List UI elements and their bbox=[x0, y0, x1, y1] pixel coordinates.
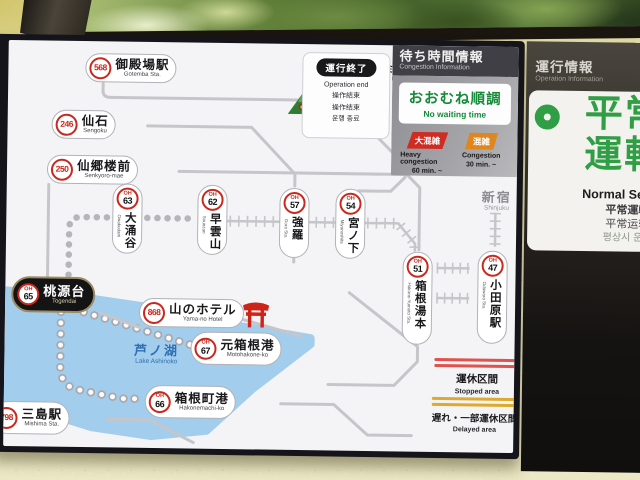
station-motohakone: OH67 元箱根港Motohakone-ko bbox=[190, 332, 281, 366]
normal-status-circle-icon bbox=[535, 104, 560, 129]
station-number-badge: OH54 bbox=[339, 193, 361, 215]
station-number-badge: OH63 bbox=[116, 187, 138, 209]
route-badge: 568 bbox=[89, 57, 111, 79]
congestion-info-panel: 待ち時間情報 Congestion Information おおむね順調 No … bbox=[391, 45, 519, 181]
heavy-congestion-legend: 大混雑 Heavy congestion 60 min. ~ bbox=[400, 132, 455, 175]
station-miyanoshita: OH54 Miyanoshita宮ノ下 bbox=[335, 189, 366, 259]
congestion-badge: 混雑 bbox=[465, 133, 498, 150]
congestion-panel-body: おおむね順調 No waiting time 大混雑 bbox=[391, 76, 518, 178]
station-senkyoro: 250 仙郷楼前Senkyoro-mae bbox=[47, 155, 138, 185]
stopped-line-symbol bbox=[434, 358, 518, 368]
lake-label: 芦ノ湖 Lake Ashinoko bbox=[116, 343, 196, 366]
station-number-badge: OH66 bbox=[149, 390, 171, 412]
heavy-congestion-badge: 大混雑 bbox=[407, 132, 449, 150]
route-map-screen: 芦ノ湖 Lake Ashinoko 568 御殿場駅Gotemba Sta. 5… bbox=[3, 40, 519, 453]
operation-end-legend: 運行終了 Operation end 操作結束 操作结束 운행 종료 bbox=[301, 52, 390, 139]
route-badge: 246 bbox=[55, 113, 77, 135]
operation-end-badge: 運行終了 bbox=[316, 58, 376, 77]
station-owakudani: OH63 Owakudani大涌谷 bbox=[112, 183, 143, 253]
route-badge: 868 bbox=[143, 301, 165, 323]
station-odawara: OH47 Odawara Sta.小田原駅 bbox=[477, 251, 508, 344]
station-number-badge: OH57 bbox=[283, 192, 305, 214]
congestion-legend: 混雑 Congestion 30 min. ~ bbox=[454, 132, 509, 175]
station-number-badge: OH51 bbox=[407, 256, 429, 278]
station-number-badge: OH65 bbox=[17, 283, 39, 305]
congestion-panel-header: 待ち時間情報 Congestion Information bbox=[392, 45, 518, 77]
station-mishima: 798 三島駅Mishima Sta. bbox=[3, 401, 69, 435]
normal-operation-card: 平常 運転 Normal Service 平常運転 平常运转 평상시 운행 bbox=[527, 90, 640, 252]
wall-photo-scene: { "map": { "stations": { "gotemba": {"ba… bbox=[0, 0, 640, 480]
route-badge: 798 bbox=[3, 406, 18, 428]
station-gotemba: 568 御殿場駅Gotemba Sta. bbox=[85, 53, 176, 83]
station-yamanohotel: 868 山のホテルYama-no Hotel bbox=[139, 298, 244, 328]
congestion-status: おおむね順調 No waiting time bbox=[399, 83, 512, 126]
normal-operation-status: 平常 運転 bbox=[584, 94, 640, 177]
station-togendai-current: OH65 桃源台Togendai bbox=[11, 276, 96, 313]
station-sounzan: OH62 Sounzan早雲山 bbox=[197, 185, 228, 255]
stopped-line-legend: 運休区間 Stopped area bbox=[434, 358, 519, 396]
station-number-badge: OH47 bbox=[482, 255, 504, 277]
operation-info-header: 運行情報 Operation Information bbox=[526, 41, 640, 84]
operation-info-screen: 運行情報 Operation Information 平常 運転 Normal … bbox=[521, 41, 640, 473]
station-gora: OH57 Gora Sta.強羅 bbox=[279, 188, 310, 258]
delayed-line-legend: 遅れ・一部運休区間 Delayed area bbox=[431, 397, 517, 434]
station-number-badge: OH67 bbox=[194, 337, 216, 359]
station-number-badge: OH62 bbox=[201, 189, 223, 211]
route-badge: 250 bbox=[51, 158, 73, 180]
station-yumoto: OH51 Hakone-Yumoto Sta.箱根湯本 bbox=[402, 251, 433, 344]
station-sengoku: 246 仙石Sengoku bbox=[51, 110, 115, 140]
delayed-line-symbol bbox=[432, 397, 518, 407]
station-hakonemachi: OH66 箱根町港Hakonemachi-ko bbox=[145, 385, 236, 419]
station-shinjuku: 新宿 Shinjuku bbox=[468, 190, 518, 212]
